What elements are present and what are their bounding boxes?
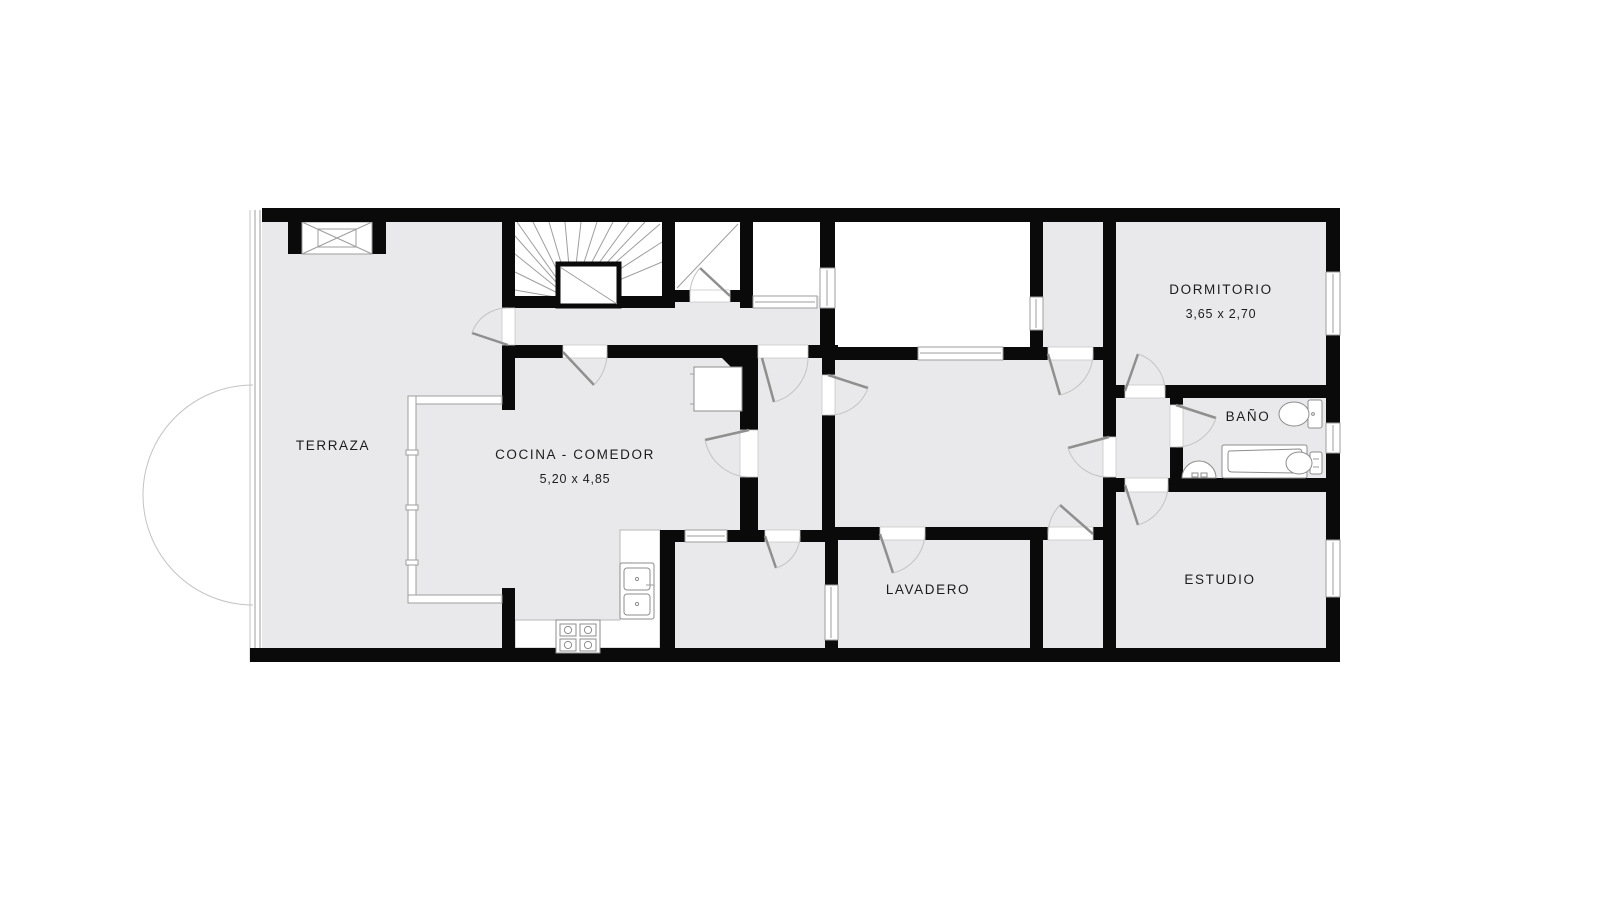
- label-cocina: COCINA - COMEDOR: [495, 447, 655, 462]
- dim-cocina: 5,20 x 4,85: [540, 472, 611, 486]
- label-dormitorio: DORMITORIO: [1169, 282, 1273, 297]
- label-bano: BAÑO: [1226, 409, 1271, 424]
- window-patio-left: [820, 268, 835, 308]
- label-terraza: TERRAZA: [296, 438, 370, 453]
- window-estudio: [1326, 540, 1340, 597]
- terrace-glazing: [143, 210, 260, 661]
- dim-dormitorio: 3,65 x 2,70: [1186, 307, 1257, 321]
- patio-void: [835, 222, 1030, 347]
- window-bano: [1326, 423, 1340, 453]
- window-bottom-room-top: [685, 530, 727, 542]
- label-estudio: ESTUDIO: [1184, 572, 1255, 587]
- toilet-icon: [1279, 400, 1322, 428]
- window-patio-right: [1030, 297, 1043, 330]
- bidet-icon: [1286, 452, 1322, 474]
- kitchen-sink-icon: [620, 563, 654, 619]
- label-lavadero: LAVADERO: [886, 582, 970, 597]
- window-stair-landing: [753, 296, 817, 308]
- skylight-shaft: [288, 222, 386, 254]
- window-bottom-room-right: [825, 585, 838, 640]
- floor-plan: TERRAZA COCINA - COMEDOR 5,20 x 4,85 LAV…: [0, 0, 1600, 900]
- refrigerator-icon: [690, 367, 742, 411]
- stove-icon: [556, 620, 600, 653]
- window-dormitorio: [1326, 272, 1340, 335]
- terrace-curve: [143, 385, 253, 605]
- window-patio-bottom: [918, 347, 1003, 360]
